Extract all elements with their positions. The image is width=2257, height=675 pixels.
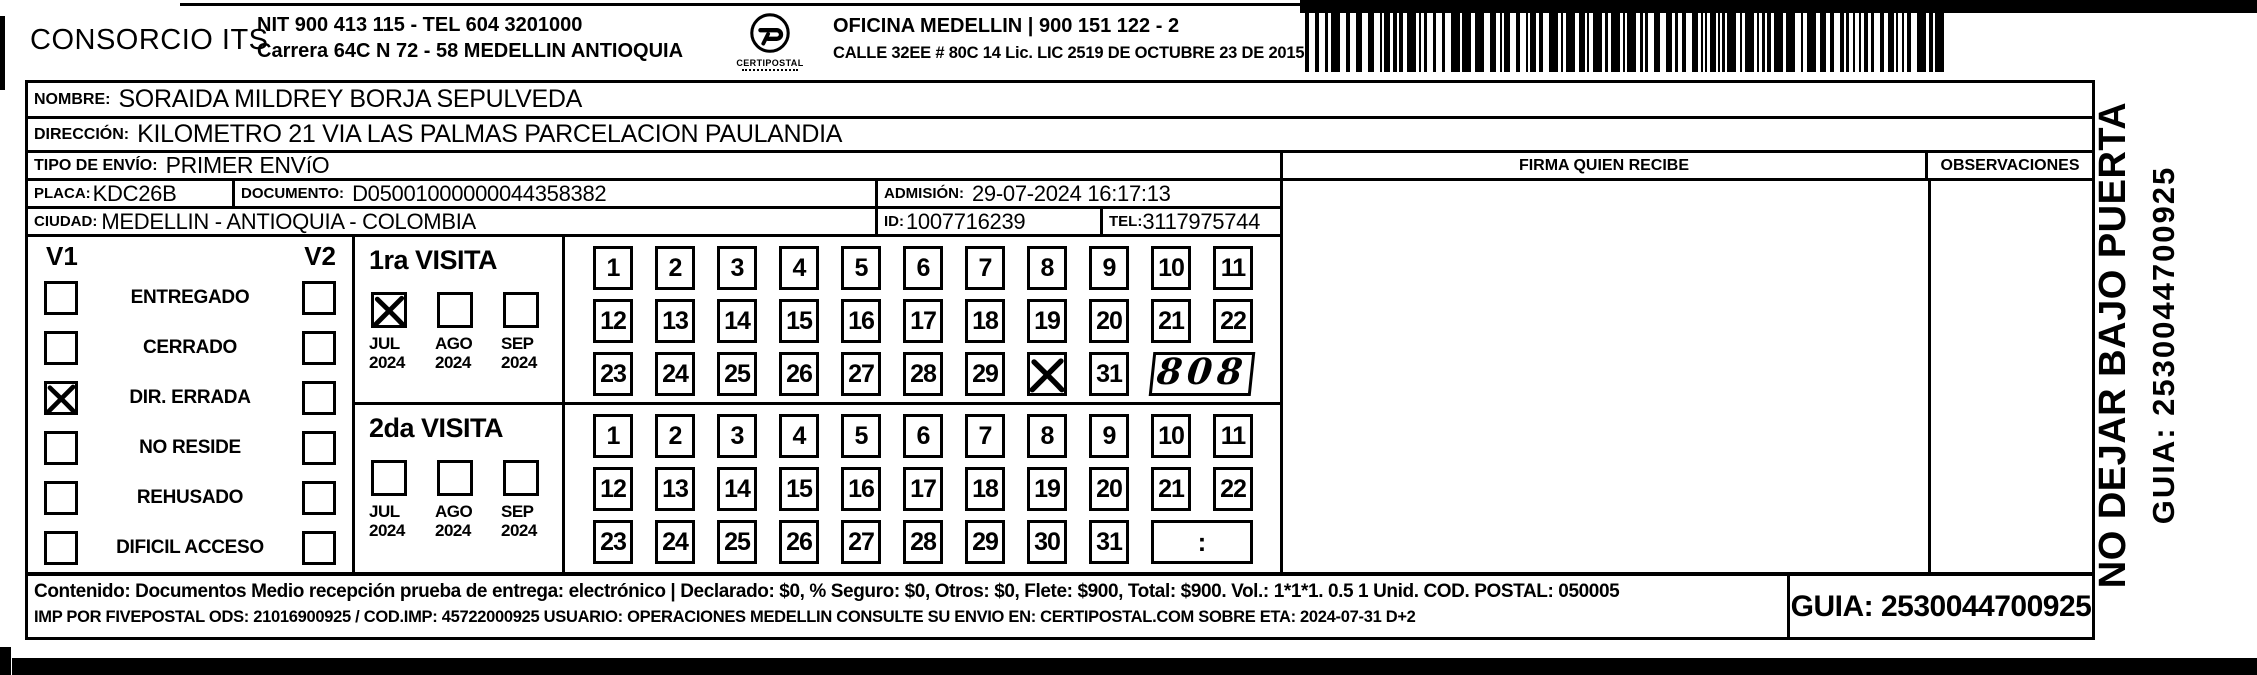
visit-2-day-20[interactable]: 20 bbox=[1089, 467, 1129, 511]
visit-1-day-9[interactable]: 9 bbox=[1089, 246, 1129, 290]
column-divider bbox=[1928, 181, 1931, 572]
visit-1-jul-checkbox[interactable] bbox=[371, 292, 407, 328]
visit-2-day-11[interactable]: 11 bbox=[1213, 414, 1253, 458]
logo-wordmark: CERTIPOSTAL bbox=[733, 58, 807, 68]
visit-1-day-8[interactable]: 8 bbox=[1027, 246, 1067, 290]
visit-2-day-16[interactable]: 16 bbox=[841, 467, 881, 511]
shipment-barcode bbox=[1305, 13, 1945, 72]
visit-2-day-15[interactable]: 15 bbox=[779, 467, 819, 511]
visit-1-months: JUL2024AGO2024SEP2024 bbox=[355, 292, 562, 372]
left-edge-scan-mark bbox=[0, 16, 5, 90]
visit-1-day-30[interactable]: 30 bbox=[1027, 352, 1067, 396]
calendar-row: 1213141516171819202122 bbox=[593, 299, 1280, 343]
status-row-dir-errada: DIR. ERRADA bbox=[28, 373, 352, 423]
top-right-black-bar bbox=[1300, 0, 2257, 13]
ciudad-cell: CIUDAD: MEDELLIN - ANTIOQUIA - COLOMBIA bbox=[28, 209, 878, 237]
signature-region: FIRMA QUIEN RECIBE OBSERVACIONES bbox=[1280, 153, 2092, 572]
visit-1-day-12[interactable]: 12 bbox=[593, 299, 633, 343]
visit-2-ago-checkbox[interactable] bbox=[437, 460, 473, 496]
visit-1-day-2[interactable]: 2 bbox=[655, 246, 695, 290]
certipostal-logo-icon bbox=[747, 11, 793, 57]
v2-dir-errada-checkbox[interactable] bbox=[302, 381, 336, 415]
visit-2-day-4[interactable]: 4 bbox=[779, 414, 819, 458]
month-label: JUL2024 bbox=[369, 502, 425, 540]
visit-2-day-10[interactable]: 10 bbox=[1151, 414, 1191, 458]
visit-1-day-3[interactable]: 3 bbox=[717, 246, 757, 290]
calendar-row: 1234567891011 bbox=[593, 246, 1280, 290]
status-label-no-reside: NO RESIDE bbox=[78, 437, 302, 459]
v1-rehusado-checkbox[interactable] bbox=[44, 481, 78, 515]
visit-1-calendar: 1234567891011121314151617181920212223242… bbox=[565, 237, 1280, 402]
office-block: OFICINA MEDELLIN | 900 151 122 - 2 CALLE… bbox=[833, 15, 1304, 63]
visits-section: V1 V2 ENTREGADOCERRADODIR. ERRADANO RESI… bbox=[28, 237, 1280, 572]
side-warning-text: NO DEJAR BAJO PUERTA bbox=[2086, 40, 2140, 650]
status-label-entregado: ENTREGADO bbox=[78, 287, 302, 309]
visit-2-month-sep: SEP2024 bbox=[501, 460, 557, 540]
visit-2-month-jul: JUL2024 bbox=[369, 460, 425, 540]
visit-columns-header: V1 V2 bbox=[28, 241, 352, 273]
v1-dir-errada-checkbox[interactable] bbox=[44, 381, 78, 415]
visit-1-day-23[interactable]: 23 bbox=[593, 352, 633, 396]
documento-value: D05001000000044358382 bbox=[352, 181, 606, 207]
visit-2-jul-checkbox[interactable] bbox=[371, 460, 407, 496]
visit-2-day-13[interactable]: 13 bbox=[655, 467, 695, 511]
visit-1-day-24[interactable]: 24 bbox=[655, 352, 695, 396]
company-address-line: Carrera 64C N 72 - 58 MEDELLIN ANTIOQUIA bbox=[257, 38, 683, 64]
firma-quien-recibe-header: FIRMA QUIEN RECIBE bbox=[1283, 153, 1928, 178]
visit-2-title: 2da VISITA bbox=[369, 413, 562, 444]
x-mark bbox=[43, 380, 80, 417]
direccion-row: DIRECCIÓN: KILOMETRO 21 VIA LAS PALMAS P… bbox=[28, 119, 2092, 153]
visit-2-day-14[interactable]: 14 bbox=[717, 467, 757, 511]
direccion-label: DIRECCIÓN: bbox=[34, 126, 129, 144]
visit-2-day-22[interactable]: 22 bbox=[1213, 467, 1253, 511]
visit-1-sep-checkbox[interactable] bbox=[503, 292, 539, 328]
ciudad-value: MEDELLIN - ANTIOQUIA - COLOMBIA bbox=[101, 209, 476, 235]
calendar-row: 1234567891011 bbox=[593, 414, 1280, 458]
visit-1-day-21[interactable]: 21 bbox=[1151, 299, 1191, 343]
visit-2-day-7[interactable]: 7 bbox=[965, 414, 1005, 458]
side-note: NO DEJAR BAJO PUERTA GUIA: 2530044700925 bbox=[2086, 40, 2198, 650]
ciudad-label: CIUDAD: bbox=[34, 213, 97, 230]
visit-1-month-sep: SEP2024 bbox=[501, 292, 557, 372]
visit-1-day-18[interactable]: 18 bbox=[965, 299, 1005, 343]
v1-no-reside-checkbox[interactable] bbox=[44, 431, 78, 465]
visit-1-day-13[interactable]: 13 bbox=[655, 299, 695, 343]
visit-2-day-6[interactable]: 6 bbox=[903, 414, 943, 458]
visit-1-day-14[interactable]: 14 bbox=[717, 299, 757, 343]
visit-2-note-box[interactable]: : bbox=[1151, 520, 1253, 564]
contenido-line: Contenido: Documentos Medio recepción pr… bbox=[34, 581, 1783, 603]
placa-value: KDC26B bbox=[93, 181, 177, 207]
visit-1-title: 1ra VISITA bbox=[369, 245, 562, 276]
visit-1-ago-checkbox[interactable] bbox=[437, 292, 473, 328]
admision-label: ADMISIÓN: bbox=[884, 185, 964, 202]
nombre-row: NOMBRE: SORAIDA MILDREY BORJA SEPULVEDA bbox=[28, 83, 2092, 119]
visit-2-day-25[interactable]: 25 bbox=[717, 520, 757, 564]
visit-2-day-26[interactable]: 26 bbox=[779, 520, 819, 564]
admision-cell: ADMISIÓN: 29-07-2024 16:17:13 bbox=[878, 181, 1280, 209]
documento-label: DOCUMENTO: bbox=[241, 185, 344, 202]
signature-headers: FIRMA QUIEN RECIBE OBSERVACIONES bbox=[1283, 153, 2092, 181]
x-mark bbox=[1026, 351, 1069, 398]
visit-2-day-18[interactable]: 18 bbox=[965, 467, 1005, 511]
visit-2-day-3[interactable]: 3 bbox=[717, 414, 757, 458]
visit-1-day-20[interactable]: 20 bbox=[1089, 299, 1129, 343]
visit-2-months: JUL2024AGO2024SEP2024 bbox=[355, 460, 562, 540]
visit-1-day-5[interactable]: 5 bbox=[841, 246, 881, 290]
visit-1-day-4[interactable]: 4 bbox=[779, 246, 819, 290]
visit-2-day-5[interactable]: 5 bbox=[841, 414, 881, 458]
visit-2-day-12[interactable]: 12 bbox=[593, 467, 633, 511]
observaciones-area[interactable] bbox=[1928, 181, 2092, 572]
visit-1-block: 1ra VISITA JUL2024AGO2024SEP2024 1234567… bbox=[355, 237, 1280, 405]
id-value: 1007716239 bbox=[906, 209, 1025, 235]
status-label-rehusado: REHUSADO bbox=[78, 487, 302, 509]
observaciones-header: OBSERVACIONES bbox=[1928, 153, 2092, 178]
status-row-rehusado: REHUSADO bbox=[28, 473, 352, 523]
calendar-row: 1213141516171819202122 bbox=[593, 467, 1280, 511]
v2-column-label: V2 bbox=[304, 241, 336, 273]
bottom-left-scan-mark bbox=[0, 647, 11, 675]
visit-status-panel: V1 V2 ENTREGADOCERRADODIR. ERRADANO RESI… bbox=[28, 237, 355, 572]
visit-1-day-19[interactable]: 19 bbox=[1027, 299, 1067, 343]
visit-2-day-31[interactable]: 31 bbox=[1089, 520, 1129, 564]
v2-entregado-checkbox[interactable] bbox=[302, 281, 336, 315]
visit-1-month-jul: JUL2024 bbox=[369, 292, 425, 372]
visit-2-month-ago: AGO2024 bbox=[435, 460, 491, 540]
status-rows: ENTREGADOCERRADODIR. ERRADANO RESIDEREHU… bbox=[28, 273, 352, 573]
visit-2-block: 2da VISITA JUL2024AGO2024SEP2024 1234567… bbox=[355, 405, 1280, 572]
company-nit-line: NIT 900 413 115 - TEL 604 3201000 bbox=[257, 12, 683, 38]
placa-label: PLACA: bbox=[34, 185, 91, 202]
tel-cell: TEL: 3117975744 bbox=[1103, 209, 1280, 237]
tipo-envio-value: PRIMER ENVíO bbox=[166, 153, 330, 179]
v2-dificil-acceso-checkbox[interactable] bbox=[302, 531, 336, 565]
visit-1-day-7[interactable]: 7 bbox=[965, 246, 1005, 290]
v2-cerrado-checkbox[interactable] bbox=[302, 331, 336, 365]
nombre-label: NOMBRE: bbox=[34, 91, 110, 109]
visit-1-day-17[interactable]: 17 bbox=[903, 299, 943, 343]
company-contact-block: NIT 900 413 115 - TEL 604 3201000 Carrer… bbox=[257, 12, 683, 64]
v2-no-reside-checkbox[interactable] bbox=[302, 431, 336, 465]
month-label: JUL2024 bbox=[369, 334, 425, 372]
side-guia-text: GUIA: 2530044700925 bbox=[2140, 40, 2188, 650]
visit-2-calendar: 1234567891011121314151617181920212223242… bbox=[565, 405, 1280, 572]
visit-1-day-31[interactable]: 31 bbox=[1089, 352, 1129, 396]
guia-number-box: GUIA: 2530044700925 bbox=[1790, 576, 2092, 637]
office-license-line: CALLE 32EE # 80C 14 Lic. LIC 2519 DE OCT… bbox=[833, 44, 1304, 63]
visit-2-day-23[interactable]: 23 bbox=[593, 520, 633, 564]
status-row-no-reside: NO RESIDE bbox=[28, 423, 352, 473]
visit-1-day-1[interactable]: 1 bbox=[593, 246, 633, 290]
visit-1-day-27[interactable]: 27 bbox=[841, 352, 881, 396]
company-name: CONSORCIO ITS bbox=[30, 24, 269, 57]
status-label-dificil-acceso: DIFICIL ACCESO bbox=[78, 537, 302, 559]
nombre-value: SORAIDA MILDREY BORJA SEPULVEDA bbox=[118, 85, 582, 114]
visit-2-day-17[interactable]: 17 bbox=[903, 467, 943, 511]
documento-cell: DOCUMENTO: D05001000000044358382 bbox=[235, 181, 878, 209]
tel-value: 3117975744 bbox=[1142, 209, 1260, 235]
v1-entregado-checkbox[interactable] bbox=[44, 281, 78, 315]
visit-1-note-box[interactable]: 808 bbox=[1149, 352, 1256, 396]
visit-2-day-24[interactable]: 24 bbox=[655, 520, 695, 564]
v1-cerrado-checkbox[interactable] bbox=[44, 331, 78, 365]
visit-2-day-19[interactable]: 19 bbox=[1027, 467, 1067, 511]
visit-1-day-15[interactable]: 15 bbox=[779, 299, 819, 343]
visit-1-day-28[interactable]: 28 bbox=[903, 352, 943, 396]
footer-text-cell: Contenido: Documentos Medio recepción pr… bbox=[28, 576, 1790, 637]
office-line: OFICINA MEDELLIN | 900 151 122 - 2 bbox=[833, 15, 1304, 38]
visit-2-day-8[interactable]: 8 bbox=[1027, 414, 1067, 458]
direccion-value: KILOMETRO 21 VIA LAS PALMAS PARCELACION … bbox=[137, 120, 842, 149]
visit-2-day-9[interactable]: 9 bbox=[1089, 414, 1129, 458]
bottom-black-bar bbox=[12, 658, 2257, 675]
visit-1-month-panel: 1ra VISITA JUL2024AGO2024SEP2024 bbox=[355, 237, 565, 402]
visit-2-day-2[interactable]: 2 bbox=[655, 414, 695, 458]
barcode-image bbox=[1305, 13, 1945, 72]
footer-section: Contenido: Documentos Medio recepción pr… bbox=[28, 572, 2092, 637]
v1-column-label: V1 bbox=[46, 241, 78, 273]
visit-2-day-27[interactable]: 27 bbox=[841, 520, 881, 564]
month-label: SEP2024 bbox=[501, 334, 557, 372]
visit-2-day-29[interactable]: 29 bbox=[965, 520, 1005, 564]
top-border-line bbox=[180, 3, 1305, 6]
calendar-row: 232425262728293031808 bbox=[593, 352, 1280, 396]
tipo-envio-label: TIPO DE ENVÍO: bbox=[34, 157, 158, 175]
id-label: ID: bbox=[884, 213, 904, 230]
month-label: AGO2024 bbox=[435, 334, 491, 372]
visit-2-day-28[interactable]: 28 bbox=[903, 520, 943, 564]
visit-1-day-16[interactable]: 16 bbox=[841, 299, 881, 343]
month-label: AGO2024 bbox=[435, 502, 491, 540]
visit-1-month-ago: AGO2024 bbox=[435, 292, 491, 372]
visit-1-day-10[interactable]: 10 bbox=[1151, 246, 1191, 290]
logo-tagline-line bbox=[742, 69, 798, 71]
visit-1-day-6[interactable]: 6 bbox=[903, 246, 943, 290]
status-label-cerrado: CERRADO bbox=[78, 337, 302, 359]
scanned-delivery-form: CONSORCIO ITS NIT 900 413 115 - TEL 604 … bbox=[0, 0, 2257, 675]
admision-value: 29-07-2024 16:17:13 bbox=[972, 181, 1171, 207]
status-row-cerrado: CERRADO bbox=[28, 323, 352, 373]
status-label-dir-errada: DIR. ERRADA bbox=[78, 387, 302, 409]
visit-1-day-22[interactable]: 22 bbox=[1213, 299, 1253, 343]
month-label: SEP2024 bbox=[501, 502, 557, 540]
visit-1-day-25[interactable]: 25 bbox=[717, 352, 757, 396]
visit-1-day-26[interactable]: 26 bbox=[779, 352, 819, 396]
visit-2-month-panel: 2da VISITA JUL2024AGO2024SEP2024 bbox=[355, 405, 565, 572]
tipo-envio-row: TIPO DE ENVÍO: PRIMER ENVíO bbox=[28, 153, 1280, 181]
visit-1-day-11[interactable]: 11 bbox=[1213, 246, 1253, 290]
certipostal-logo: CERTIPOSTAL bbox=[733, 11, 807, 71]
status-row-dificil-acceso: DIFICIL ACCESO bbox=[28, 523, 352, 573]
visit-2-day-21[interactable]: 21 bbox=[1151, 467, 1191, 511]
id-cell: ID: 1007716239 bbox=[878, 209, 1103, 237]
visit-2-day-1[interactable]: 1 bbox=[593, 414, 633, 458]
x-mark bbox=[370, 291, 409, 330]
imp-line: IMP POR FIVEPOSTAL ODS: 21016900925 / CO… bbox=[34, 608, 1783, 627]
tel-label: TEL: bbox=[1109, 213, 1142, 230]
visit-2-day-30[interactable]: 30 bbox=[1027, 520, 1067, 564]
v1-dificil-acceso-checkbox[interactable] bbox=[44, 531, 78, 565]
placa-cell: PLACA: KDC26B bbox=[28, 181, 235, 209]
calendar-row: 232425262728293031: bbox=[593, 520, 1280, 564]
visit-2-sep-checkbox[interactable] bbox=[503, 460, 539, 496]
v2-rehusado-checkbox[interactable] bbox=[302, 481, 336, 515]
signature-area[interactable] bbox=[1283, 181, 1928, 572]
signature-space bbox=[1283, 181, 2092, 572]
delivery-form-table: NOMBRE: SORAIDA MILDREY BORJA SEPULVEDA … bbox=[25, 80, 2095, 640]
visit-1-day-29[interactable]: 29 bbox=[965, 352, 1005, 396]
status-row-entregado: ENTREGADO bbox=[28, 273, 352, 323]
